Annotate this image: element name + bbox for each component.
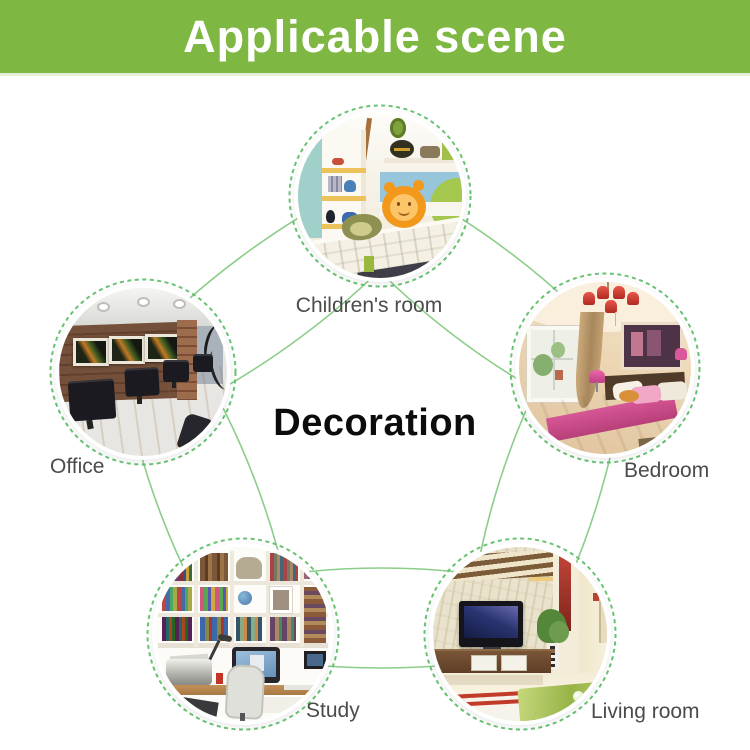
- ch-eye2: [408, 202, 411, 206]
- ch-toy-or: [426, 116, 444, 128]
- label-childrens-room: Children's room: [296, 294, 442, 318]
- lv-plant2: [549, 621, 569, 643]
- ch-greenbox: [442, 136, 462, 160]
- bd-sh: [613, 286, 625, 299]
- ch-books: [328, 176, 342, 192]
- bd-fig2: [647, 330, 661, 356]
- st-bag: [236, 557, 262, 579]
- of-light: [137, 297, 150, 307]
- st-bk1: [162, 555, 192, 581]
- st-bk5: [200, 587, 228, 611]
- ch-shelf: [322, 196, 366, 201]
- bd-drop: [615, 312, 616, 326]
- center-title: Decoration: [273, 402, 476, 445]
- page: Applicable scene: [0, 0, 750, 750]
- st-bk10: [270, 617, 296, 641]
- lv-refl: [443, 675, 543, 685]
- ch-toy1: [332, 158, 344, 165]
- of-mon: [193, 354, 213, 372]
- of-light: [173, 299, 186, 309]
- st-bk6: [304, 555, 326, 579]
- bd-leaf1: [533, 354, 553, 376]
- ch-toy-green: [390, 118, 406, 138]
- of-frame: [73, 338, 109, 366]
- of-light: [97, 302, 110, 312]
- st-v: [194, 551, 198, 647]
- ch-smile: [398, 206, 410, 216]
- st-pframe: [270, 587, 292, 613]
- bd-lampR: [675, 348, 687, 360]
- of-frame: [109, 336, 145, 364]
- label-living-room: Living room: [591, 700, 700, 724]
- label-bedroom: Bedroom: [624, 459, 709, 483]
- st-bk7: [162, 617, 192, 641]
- bd-pw2: [656, 381, 687, 401]
- bd-lampL-stem: [596, 382, 598, 392]
- st-bk4: [162, 587, 192, 611]
- lv-dr: [471, 655, 497, 671]
- bd-sh: [583, 292, 595, 305]
- st-chairpole: [240, 713, 245, 721]
- of-st1: [86, 420, 93, 430]
- photo-living-room: [433, 547, 607, 721]
- of-mon: [124, 367, 159, 397]
- st-globe: [238, 591, 252, 605]
- label-study: Study: [306, 699, 360, 723]
- bd-sill: [555, 370, 563, 380]
- st-kb: [284, 685, 314, 690]
- of-st3: [172, 382, 176, 388]
- of-frame: [145, 334, 181, 362]
- lv-dr: [501, 655, 527, 671]
- bd-sh: [597, 286, 609, 299]
- st-mon2s: [307, 654, 323, 666]
- ch-foot: [364, 256, 374, 272]
- photo-study: [156, 547, 330, 721]
- st-printer: [166, 659, 212, 685]
- st-bk3: [270, 553, 298, 581]
- bd-leaf2: [551, 342, 565, 358]
- ch-bee-stripe: [394, 148, 410, 151]
- photo-childrens-room: [298, 114, 462, 278]
- st-cup: [216, 673, 223, 684]
- of-mon: [68, 378, 117, 421]
- st-bk11: [304, 587, 326, 643]
- label-office: Office: [50, 455, 104, 479]
- st-v: [230, 551, 234, 647]
- photo-office: [59, 288, 227, 456]
- bd-sh: [627, 292, 639, 305]
- st-chairback: [225, 664, 266, 720]
- of-mon: [163, 360, 189, 382]
- lv-ball: [573, 691, 584, 702]
- lv-reddot: [593, 593, 599, 601]
- ch-toy2: [344, 180, 356, 192]
- st-floor: [156, 692, 219, 721]
- ch-plush2: [350, 222, 372, 236]
- lv-screen: [464, 606, 518, 638]
- of-st2: [137, 396, 142, 404]
- st-bk2: [200, 553, 228, 581]
- ch-shelf: [322, 168, 366, 173]
- ch-teal: [298, 120, 324, 238]
- lv-door: [599, 583, 607, 643]
- ch-toys-r: [420, 146, 440, 158]
- st-bk9: [236, 617, 262, 641]
- bd-fig1: [631, 332, 643, 356]
- bd-py: [619, 390, 639, 402]
- ch-eye1: [397, 202, 400, 206]
- bd-pane-v: [553, 330, 555, 390]
- ch-penguin: [326, 210, 335, 223]
- photo-bedroom: [519, 282, 691, 454]
